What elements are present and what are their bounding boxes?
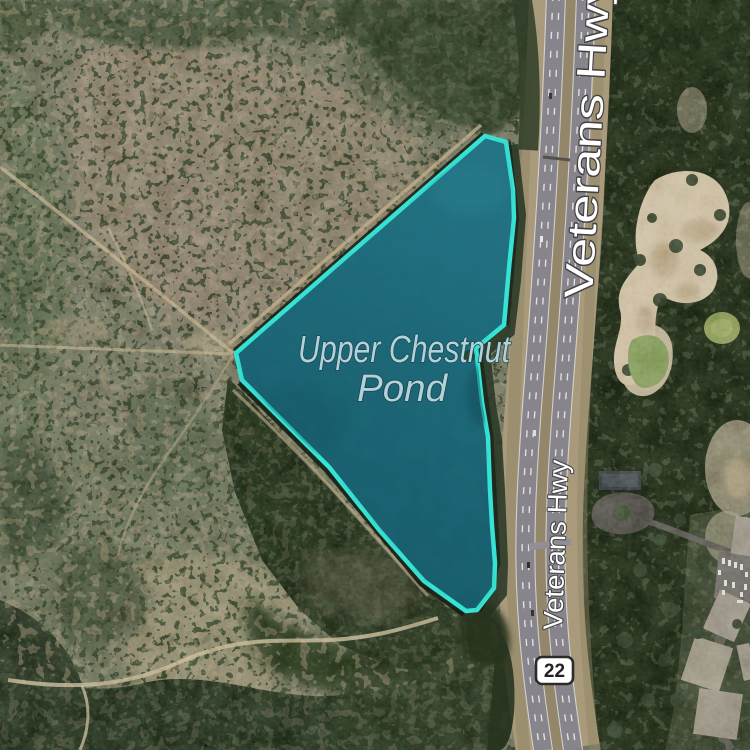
svg-text:22: 22 [544, 661, 565, 682]
svg-text:Pond: Pond [357, 368, 449, 410]
svg-text:Upper Chestnut: Upper Chestnut [298, 329, 511, 371]
svg-text:Veterans Hwy: Veterans Hwy [538, 459, 574, 630]
